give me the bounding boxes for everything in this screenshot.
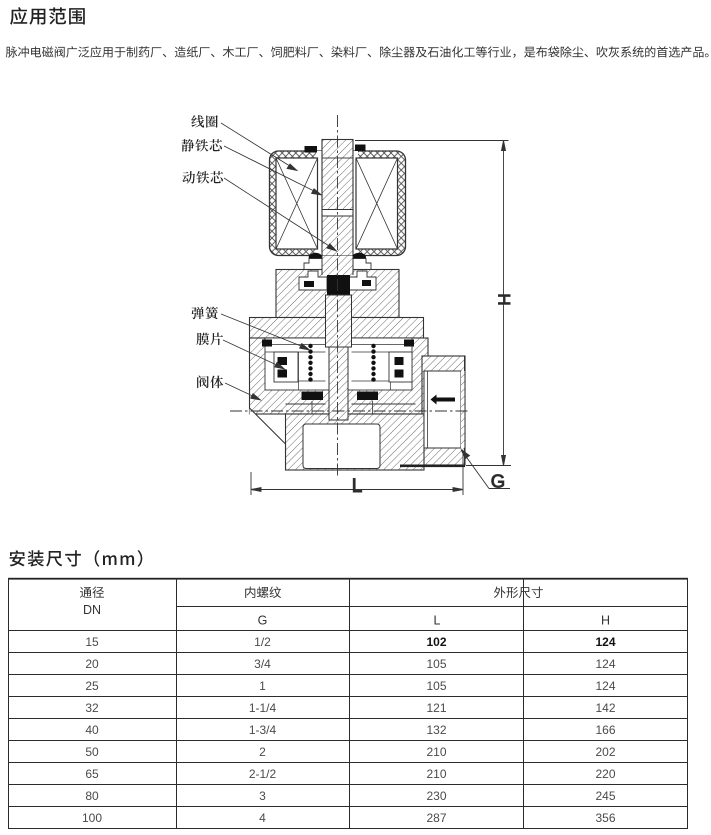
svg-text:1-1/4: 1-1/4 [249,701,277,715]
svg-text:202: 202 [595,745,615,759]
svg-text:3/4: 3/4 [254,657,271,671]
svg-text:3: 3 [259,789,266,803]
svg-text:65: 65 [85,767,99,781]
svg-text:105: 105 [426,679,446,693]
svg-text:220: 220 [595,767,615,781]
svg-text:1-3/4: 1-3/4 [249,723,277,737]
svg-text:2: 2 [259,745,266,759]
svg-text:166: 166 [595,723,615,737]
svg-text:L: L [352,476,363,497]
svg-text:287: 287 [426,811,446,825]
svg-text:DN: DN [83,603,101,617]
svg-text:105: 105 [426,657,446,671]
svg-text:124: 124 [595,635,615,649]
svg-text:80: 80 [85,789,99,803]
svg-text:15: 15 [85,635,99,649]
svg-text:L: L [434,614,441,628]
svg-text:210: 210 [426,767,446,781]
svg-text:210: 210 [426,745,446,759]
svg-text:2-1/2: 2-1/2 [249,767,277,781]
svg-text:G: G [258,614,268,628]
svg-text:100: 100 [82,811,102,825]
svg-text:H: H [601,614,610,628]
svg-text:102: 102 [426,635,446,649]
svg-text:230: 230 [426,789,446,803]
svg-text:121: 121 [426,701,446,715]
svg-text:20: 20 [85,657,99,671]
svg-text:4: 4 [259,811,266,825]
svg-text:40: 40 [85,723,99,737]
svg-text:132: 132 [426,723,446,737]
svg-text:124: 124 [595,679,615,693]
svg-text:25: 25 [85,679,99,693]
svg-text:1/2: 1/2 [254,635,271,649]
svg-text:356: 356 [595,811,615,825]
svg-text:1: 1 [259,679,266,693]
svg-text:G: G [491,471,505,492]
svg-text:50: 50 [85,745,99,759]
svg-text:124: 124 [595,657,615,671]
svg-text:245: 245 [595,789,615,803]
svg-text:142: 142 [595,701,615,715]
svg-text:H: H [495,293,514,305]
svg-text:32: 32 [85,701,99,715]
